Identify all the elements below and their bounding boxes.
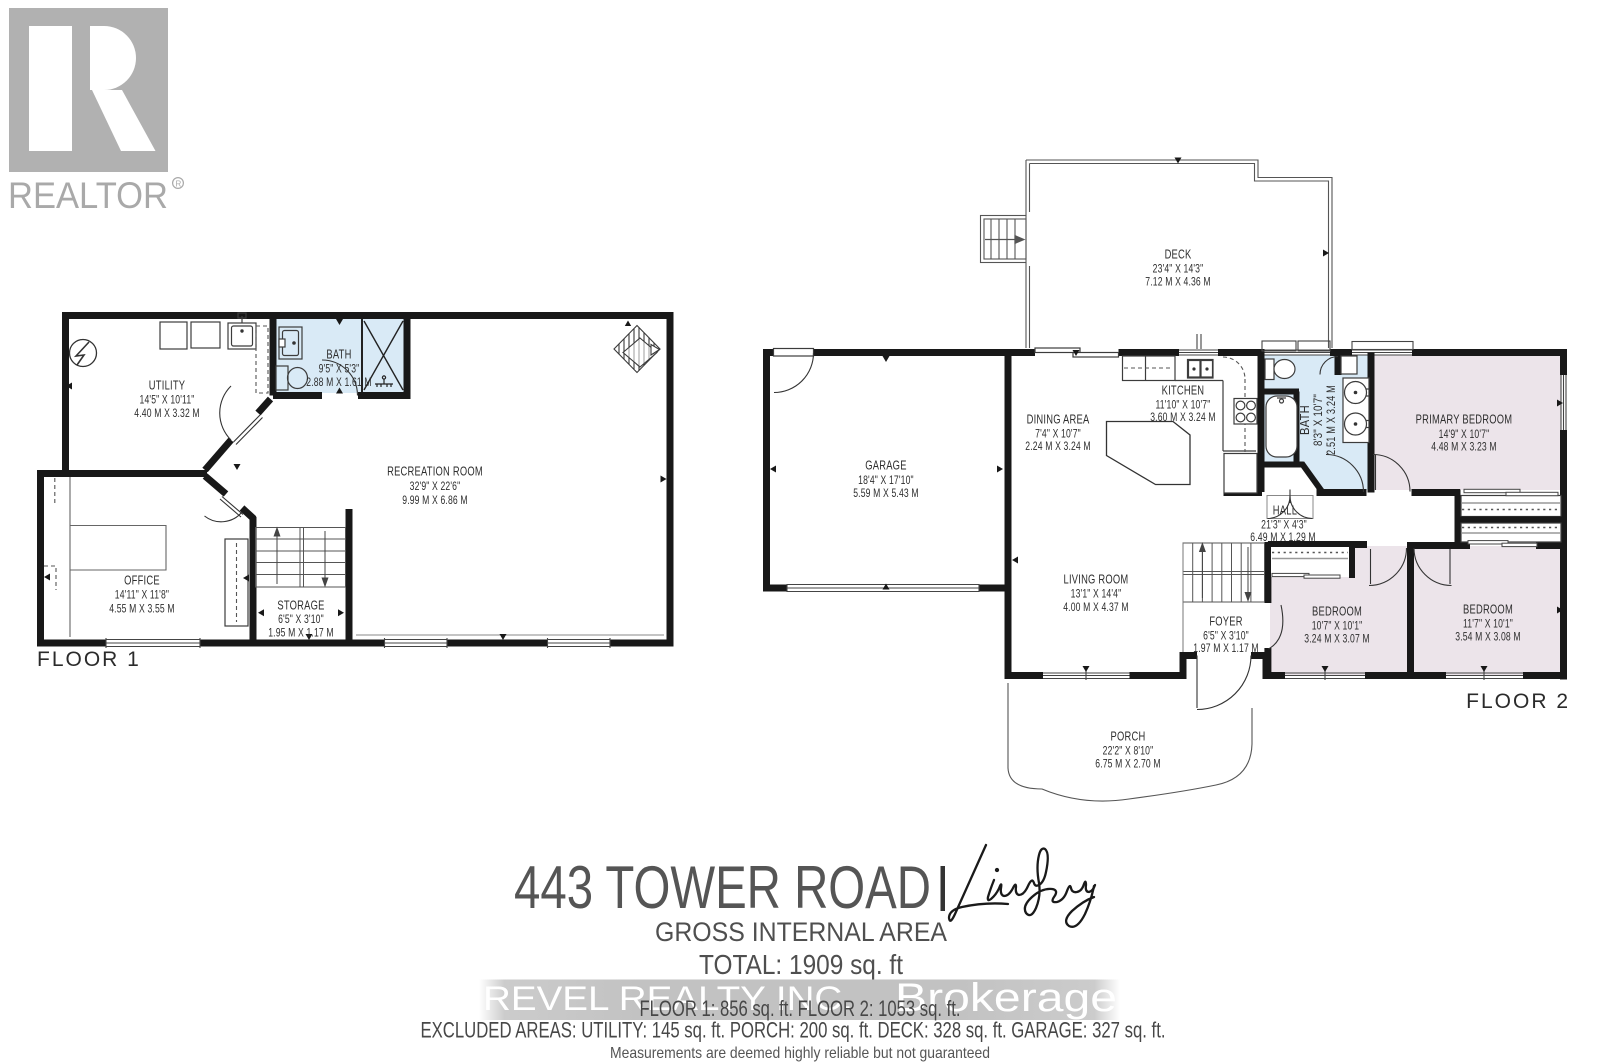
svg-text:GROSS INTERNAL AREA: GROSS INTERNAL AREA	[655, 917, 947, 947]
svg-text:REALTOR: REALTOR	[8, 175, 168, 216]
svg-text:3.24 M X 3.07 M: 3.24 M X 3.07 M	[1304, 633, 1369, 645]
svg-text:11'10" X 10'7": 11'10" X 10'7"	[1155, 399, 1210, 411]
svg-text:1.97 M X 1.17 M: 1.97 M X 1.17 M	[1193, 643, 1258, 655]
svg-text:14'11" X 11'8": 14'11" X 11'8"	[115, 589, 170, 601]
svg-text:DINING AREA: DINING AREA	[1027, 413, 1090, 427]
svg-text:21'3" X 4'3": 21'3" X 4'3"	[1261, 519, 1307, 531]
svg-text:2.24 M X 3.24 M: 2.24 M X 3.24 M	[1025, 441, 1090, 453]
svg-text:5.59 M X 5.43 M: 5.59 M X 5.43 M	[853, 488, 918, 500]
svg-text:6.49 M X 1.29 M: 6.49 M X 1.29 M	[1250, 532, 1315, 544]
svg-text:10'7" X 10'1": 10'7" X 10'1"	[1312, 620, 1363, 632]
svg-text:Measurements are deemed highly: Measurements are deemed highly reliable …	[610, 1045, 990, 1062]
svg-text:13'1" X 14'4": 13'1" X 14'4"	[1071, 588, 1122, 600]
svg-text:4.55 M X 3.55 M: 4.55 M X 3.55 M	[109, 603, 174, 615]
svg-text:FLOOR 2: FLOOR 2	[1466, 690, 1570, 713]
svg-text:443 TOWER ROAD: 443 TOWER ROAD	[514, 854, 931, 921]
svg-text:KITCHEN: KITCHEN	[1162, 384, 1205, 398]
svg-text:8'3" X 10'7": 8'3" X 10'7"	[1313, 394, 1325, 446]
svg-text:14'9" X 10'7": 14'9" X 10'7"	[1439, 429, 1490, 441]
svg-text:PORCH: PORCH	[1111, 730, 1146, 744]
svg-text:6.75 M X 2.70 M: 6.75 M X 2.70 M	[1095, 758, 1160, 770]
svg-text:EXCLUDED AREAS: UTILITY: 145 s: EXCLUDED AREAS: UTILITY: 145 sq. ft. POR…	[421, 1018, 1166, 1043]
svg-text:4.00 M X 4.37 M: 4.00 M X 4.37 M	[1063, 602, 1128, 614]
svg-text:OFFICE: OFFICE	[124, 574, 160, 588]
svg-text:FOYER: FOYER	[1209, 615, 1242, 629]
svg-text:2.88 M X 1.61 M: 2.88 M X 1.61 M	[306, 377, 371, 389]
svg-text:7'4" X 10'7": 7'4" X 10'7"	[1035, 428, 1081, 440]
svg-text:9.99 M X 6.86 M: 9.99 M X 6.86 M	[402, 495, 467, 507]
svg-text:3.60 M X 3.24 M: 3.60 M X 3.24 M	[1150, 412, 1215, 424]
svg-text:R: R	[176, 180, 182, 189]
svg-text:FLOOR 1: FLOOR 1	[37, 648, 141, 671]
svg-text:14'5" X 10'11": 14'5" X 10'11"	[140, 394, 195, 406]
svg-text:BEDROOM: BEDROOM	[1463, 603, 1513, 617]
svg-text:2.51 M X 3.24 M: 2.51 M X 3.24 M	[1326, 385, 1338, 455]
svg-text:PRIMARY BEDROOM: PRIMARY BEDROOM	[1416, 413, 1513, 427]
svg-text:23'4" X 14'3": 23'4" X 14'3"	[1153, 263, 1204, 275]
svg-text:STORAGE: STORAGE	[277, 599, 324, 613]
svg-text:BEDROOM: BEDROOM	[1312, 605, 1362, 619]
svg-text:GARAGE: GARAGE	[865, 459, 906, 473]
svg-text:9'5" X 5'3": 9'5" X 5'3"	[319, 363, 360, 375]
svg-text:DECK: DECK	[1165, 248, 1192, 262]
svg-text:BATH: BATH	[1298, 405, 1312, 435]
svg-text:UTILITY: UTILITY	[149, 379, 186, 393]
svg-text:TOTAL: 1909 sq. ft: TOTAL: 1909 sq. ft	[699, 949, 903, 980]
svg-text:4.40 M X 3.32 M: 4.40 M X 3.32 M	[134, 408, 199, 420]
svg-text:BATH: BATH	[326, 348, 351, 362]
svg-text:18'4" X 17'10": 18'4" X 17'10"	[858, 475, 914, 487]
svg-text:1.95 M X 1.17 M: 1.95 M X 1.17 M	[268, 627, 333, 639]
svg-text:LIVING ROOM: LIVING ROOM	[1064, 573, 1129, 587]
svg-text:6'5" X 3'10": 6'5" X 3'10"	[1203, 630, 1249, 642]
svg-text:32'9" X 22'6": 32'9" X 22'6"	[410, 481, 461, 493]
svg-text:6'5" X 3'10": 6'5" X 3'10"	[278, 614, 324, 626]
svg-text:22'2" X 8'10": 22'2" X 8'10"	[1103, 745, 1154, 757]
svg-text:4.48 M X 3.23 M: 4.48 M X 3.23 M	[1431, 441, 1496, 453]
svg-text:RECREATION ROOM: RECREATION ROOM	[387, 465, 483, 479]
svg-text:HALL: HALL	[1273, 504, 1297, 518]
svg-text:11'7" X 10'1": 11'7" X 10'1"	[1463, 618, 1513, 630]
svg-text:3.54 M X 3.08 M: 3.54 M X 3.08 M	[1455, 631, 1520, 643]
svg-text:7.12 M X 4.36 M: 7.12 M X 4.36 M	[1145, 276, 1210, 288]
